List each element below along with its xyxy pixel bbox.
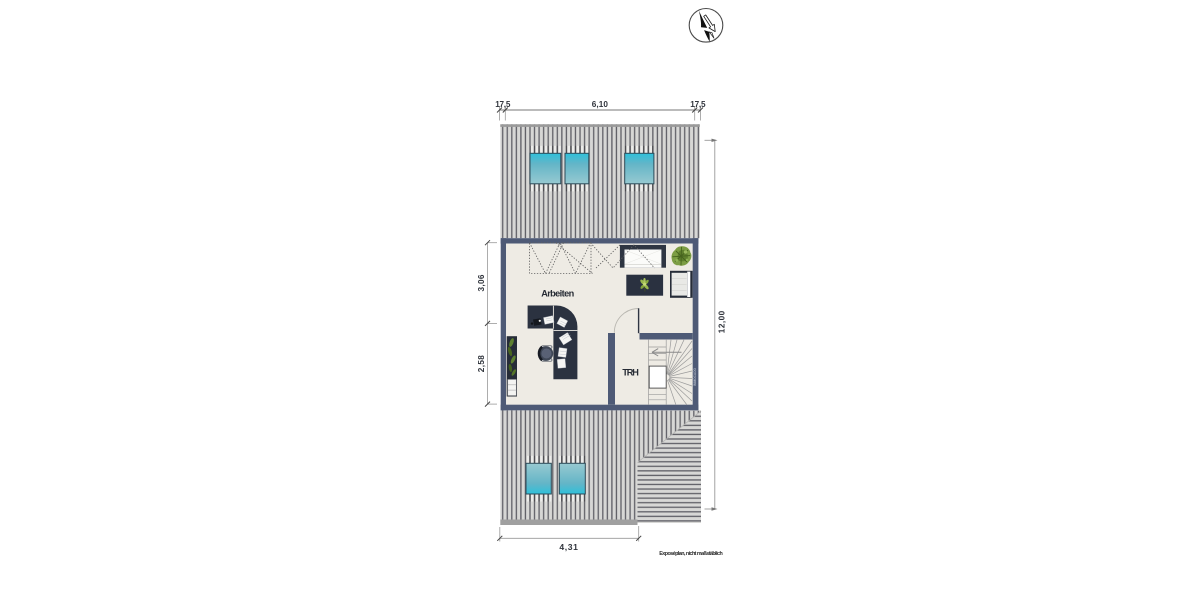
svg-text:17,5: 17,5: [495, 100, 511, 109]
svg-text:4,31: 4,31: [559, 542, 578, 552]
svg-text:Arbeiten: Arbeiten: [541, 289, 574, 299]
svg-text:IMMOCADO: IMMOCADO: [693, 367, 697, 386]
svg-text:TRH: TRH: [622, 367, 639, 377]
svg-text:Exposéplan, nicht maßstäblich: Exposéplan, nicht maßstäblich: [659, 551, 723, 557]
svg-text:2,58: 2,58: [477, 355, 486, 372]
svg-text:3,06: 3,06: [477, 274, 486, 291]
svg-text:12,00: 12,00: [717, 310, 726, 333]
svg-text:17,5: 17,5: [690, 100, 706, 109]
svg-text:6,10: 6,10: [592, 100, 609, 109]
